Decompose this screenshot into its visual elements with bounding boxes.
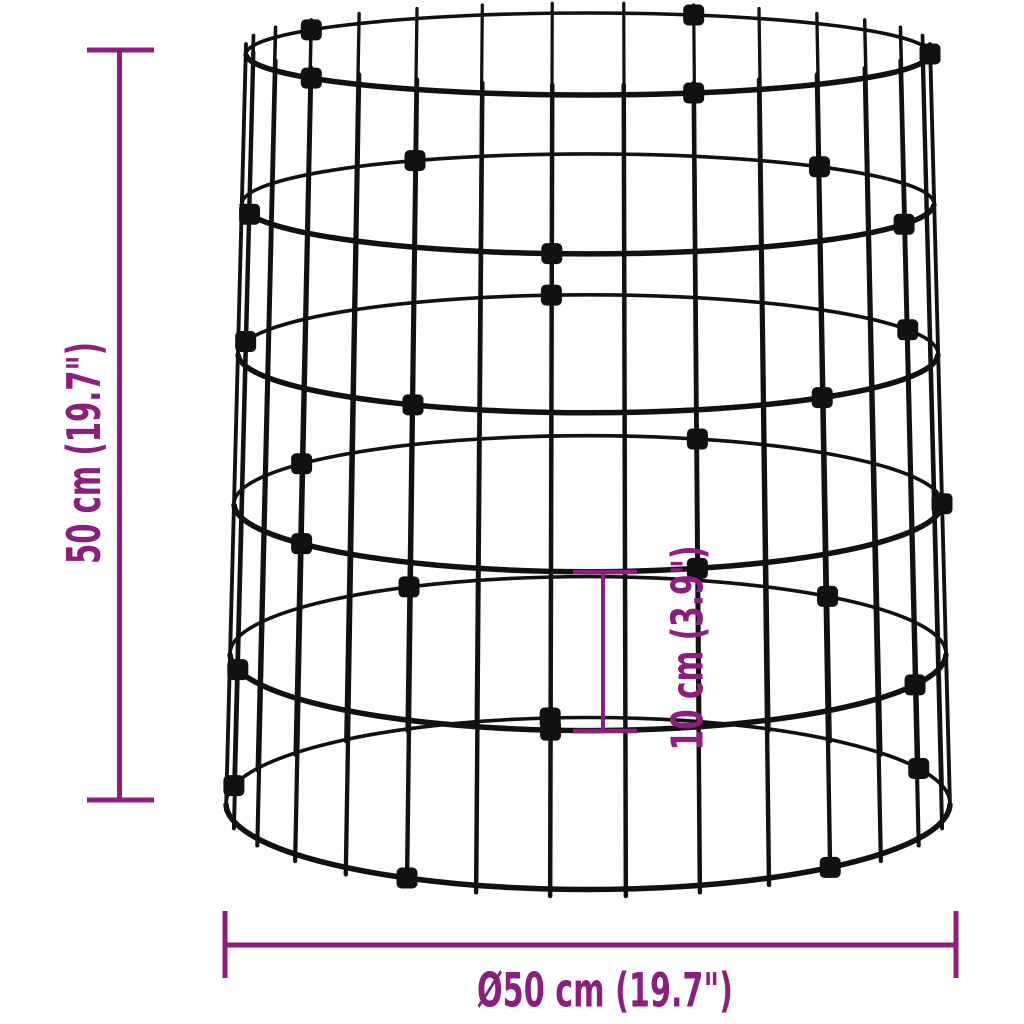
wire-cage (223, 3, 952, 896)
cage-wire (346, 14, 359, 742)
wire-clip (540, 707, 561, 728)
wire-clip (223, 775, 244, 796)
cage-ring-front (234, 504, 942, 572)
wire-clip (239, 204, 260, 225)
cage-ring-back (238, 295, 938, 354)
cage-ring-back (234, 436, 942, 504)
diameter-dimension-label: Ø50 cm (19.7") (477, 964, 733, 1019)
wire-clip (235, 331, 256, 352)
wire-clip (291, 453, 312, 474)
diameter-dimension: Ø50 cm (19.7") (225, 911, 956, 1019)
cage-wire (817, 14, 830, 742)
cage-ring-front (226, 804, 950, 890)
wire-clip (541, 243, 562, 264)
wire-clip (399, 576, 420, 597)
wire-clip (683, 5, 704, 26)
cage-ring-front (242, 204, 934, 254)
wire-clip (291, 533, 312, 554)
wire-clip (932, 493, 953, 514)
cage-ring-back (246, 13, 930, 54)
product-diagram: 50 cm (19.7") 10 cm (3.9") Ø50 cm (19.7"… (0, 0, 1024, 1024)
ring-spacing-label: 10 cm (3.9") (663, 546, 714, 751)
wire-clip (817, 586, 838, 607)
wire-clip (812, 387, 833, 408)
wire-clip (541, 285, 562, 306)
wire-clip (809, 156, 830, 177)
height-dimension-label: 50 cm (19.7") (57, 342, 111, 564)
wire-clip (905, 674, 926, 695)
cage-wire (900, 27, 918, 770)
wire-clip (920, 44, 941, 65)
cage-ring-front (238, 354, 938, 413)
wire-clip (403, 394, 424, 415)
height-dimension: 50 cm (19.7") (57, 50, 154, 800)
cage-wire (257, 27, 275, 770)
cage-ring-front (246, 54, 930, 95)
wire-clip (683, 82, 704, 103)
wire-clip (897, 319, 918, 340)
wire-clip (227, 659, 248, 680)
wire-clip (301, 19, 322, 40)
wire-clip (301, 68, 322, 89)
wire-clip (908, 758, 929, 779)
cage-ring-back (242, 154, 934, 204)
cage-wire (624, 3, 626, 720)
wire-clip (405, 150, 426, 171)
cage-wire (550, 3, 552, 720)
wire-clip (894, 214, 915, 235)
diagram-canvas: 50 cm (19.7") 10 cm (3.9") Ø50 cm (19.7"… (0, 0, 1024, 1024)
wire-clip (397, 867, 418, 888)
wire-clip (687, 429, 708, 450)
wire-clip (820, 857, 841, 878)
cage-ring-back (230, 577, 946, 654)
